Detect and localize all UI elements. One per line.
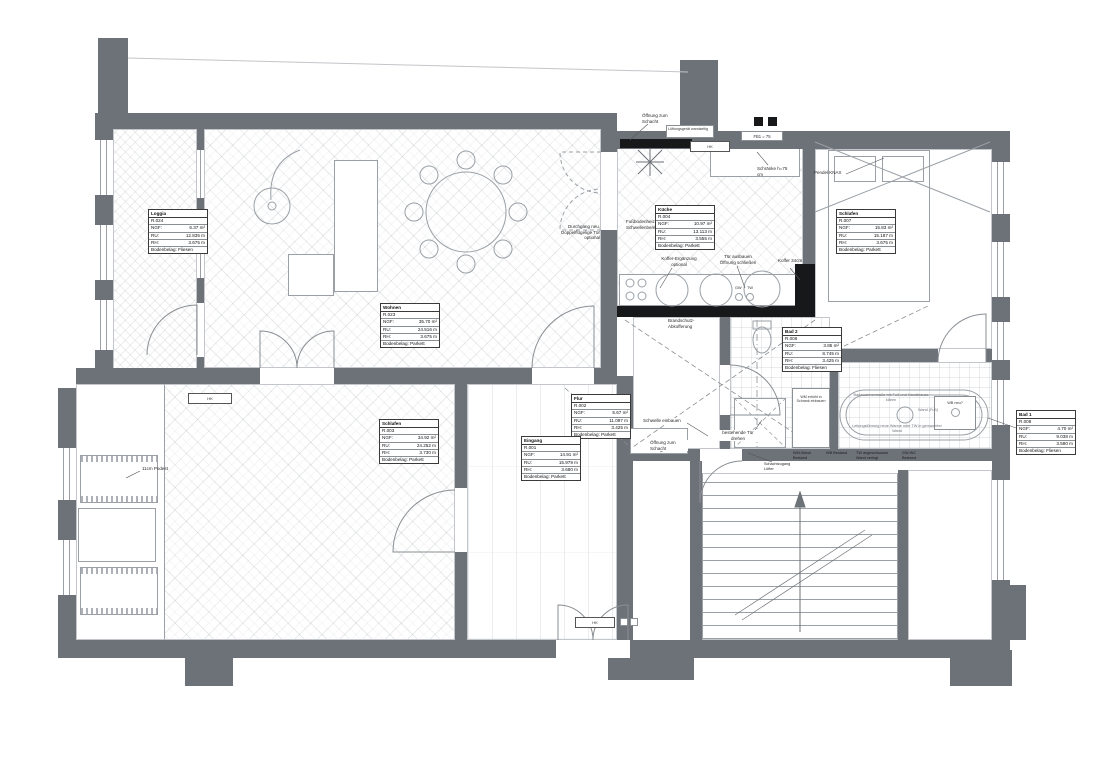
ngf-value: 5.67 m² <box>612 410 628 416</box>
window <box>95 225 113 280</box>
rh-value: 3.730 m <box>419 450 436 456</box>
wall-segment <box>58 388 76 658</box>
rh-label: RH: <box>839 240 847 246</box>
room-label-schlafen-r007: Schlafen R.007 NGF:15.83 m² RU:15.187 m … <box>836 209 896 254</box>
annotation-tuer-drehen: bestehende Tür drehen <box>716 430 760 441</box>
wall-segment <box>601 127 617 152</box>
ngf-value: 35.70 m² <box>419 319 437 325</box>
annotation-schwelle: Schwelle einbauen <box>643 418 687 424</box>
annotation-wand-fuss: Wand (Fuß) <box>918 408 946 413</box>
annotation-badewanne: Badewannenmaße mit Fuß und Handbrause kl… <box>852 393 930 402</box>
room-name: Flur <box>572 395 630 403</box>
room-number: R.004 <box>656 214 714 221</box>
room-name: Bad 2 <box>783 328 841 336</box>
wall-segment <box>95 113 617 129</box>
wall-segment <box>185 658 233 686</box>
window <box>992 380 1010 425</box>
radiator-hk: HK <box>575 617 615 628</box>
wall-segment <box>950 650 1012 686</box>
floor-finish: Bodenbelag: Parkett <box>381 341 439 347</box>
room-number: R.002 <box>572 403 630 410</box>
ngf-value: 14.91 m² <box>560 452 578 458</box>
marker-block <box>768 117 777 126</box>
rh-value: 3.580 m <box>1056 441 1073 447</box>
annotation-pendel-knax: Pendel KNAX <box>814 170 874 176</box>
wall-segment <box>690 461 702 641</box>
annotation-durchgang: Durchgang neu, Doppelflügelige Tür optio… <box>560 224 600 241</box>
annotation-podest: 11cm Podest <box>142 466 186 472</box>
wall-segment <box>608 658 694 680</box>
room-label-bad1: Bad 1 R.008 NGF:4.70 m² RU:9.038 m RH:3.… <box>1016 410 1076 455</box>
rh-label: RH: <box>1019 441 1027 447</box>
small-cabinet <box>620 618 628 626</box>
door-opening <box>532 368 594 384</box>
ru-label: RU: <box>1019 434 1027 440</box>
wall-segment <box>830 362 838 461</box>
ngf-label: NGF: <box>658 221 669 227</box>
rh-label: RH: <box>785 358 793 364</box>
ru-label: RU: <box>839 233 847 239</box>
room-label-bad2: Bad 2 R.006 NGF:3.85 m² RU:8.745 m RH:3.… <box>782 327 842 372</box>
annotation-wm-box: WM erhöht in Schrank einbauen <box>792 388 830 448</box>
radiator-hk: HK <box>690 141 730 152</box>
ngf-label: NGF: <box>574 410 585 416</box>
room-number: R.006 <box>783 336 841 343</box>
ru-value: 24.516 m <box>418 327 437 333</box>
wall-segment <box>1010 585 1026 640</box>
ru-value: 8.745 m <box>822 351 839 357</box>
floor-finish: Bodenbelag: Fliesen <box>1017 448 1075 454</box>
room-name: Schlafen <box>837 210 895 218</box>
door-opening <box>260 368 334 384</box>
floor-finish: Bodenbelag: Parkett <box>656 243 714 249</box>
wall-segment <box>455 384 467 488</box>
annotation-gw: GW <box>735 286 742 291</box>
rh-value: 3.675 m <box>188 240 205 246</box>
ru-label: RU: <box>524 460 532 466</box>
ru-value: 15.187 m <box>874 233 893 239</box>
door-opening <box>601 152 617 230</box>
ngf-value: 4.70 m² <box>1057 426 1073 432</box>
room-label-flur: Flur R.002 NGF:5.67 m² RU:11.097 m RH:3.… <box>571 394 631 439</box>
door-opening <box>197 303 204 357</box>
wall-segment <box>601 230 617 376</box>
annotation-brandschutz: Brandschutz-Abkofferung <box>668 318 714 329</box>
room-name: Wohnen <box>381 304 439 312</box>
chimney <box>680 60 718 131</box>
annotation-schraenke: Schränke h=75 cm <box>757 166 791 177</box>
pillow <box>882 156 924 182</box>
room-name: Bad 1 <box>1017 411 1075 419</box>
ru-label: RU: <box>382 443 390 449</box>
room-label-schlafen-r003: Schlafen R.003 NGF:34.92 m² RU:24.252 m … <box>379 419 439 464</box>
ru-label: RU: <box>574 418 582 424</box>
rh-label: RH: <box>658 236 666 242</box>
room-number: R.007 <box>837 218 895 225</box>
ngf-label: NGF: <box>839 225 850 231</box>
stair-landing <box>908 470 992 640</box>
wall-segment <box>898 470 908 640</box>
wb-neu-label: WB neu? <box>947 401 963 405</box>
rh-label: RH: <box>382 450 390 456</box>
room-number: R.024 <box>149 218 207 225</box>
rh-value: 3.425 m <box>611 425 628 431</box>
rh-value: 3.425 m <box>822 358 839 364</box>
kitchen-counter <box>619 274 803 306</box>
floor-finish: Bodenbelag: Parkett <box>380 457 438 463</box>
annotation-wm-wand-bestand: WM-Wand Bestand <box>793 451 819 460</box>
room-number: R.023 <box>381 312 439 319</box>
room-number: R.001 <box>522 445 580 452</box>
fb1-label: FB1 = 75 <box>753 134 770 139</box>
floor-finish: Bodenbelag: Fliesen <box>149 247 207 253</box>
ngf-label: NGF: <box>383 319 394 325</box>
annotation-leitungsfuehrung: Leitungsführung neue Wanne oder TW in ge… <box>852 424 942 433</box>
ngf-value: 3.85 m² <box>823 343 839 349</box>
room-name: Loggia <box>149 210 207 218</box>
floor-finish: Bodenbelag: Parkett <box>837 247 895 253</box>
ru-label: RU: <box>785 351 793 357</box>
room-name: Küche <box>656 206 714 214</box>
ru-value: 9.038 m <box>1056 434 1073 440</box>
annotation-oeffnung-schacht-top: Öffnung zum Schacht <box>642 113 678 124</box>
rh-value: 3.675 m <box>420 334 437 340</box>
annotation-fb1-box: FB1 = 75 <box>741 131 783 141</box>
ru-label: RU: <box>383 327 391 333</box>
marker-block <box>754 117 763 126</box>
rh-label: RH: <box>524 467 532 473</box>
door-opening <box>720 365 730 415</box>
annotation-tw: TW <box>747 286 753 291</box>
annotation-oeffnung-schacht-flur: Öffnung zum Schacht <box>650 440 688 451</box>
wardrobe <box>80 455 158 503</box>
room-label-eingang: Eingang R.001 NGF:14.91 m² RU:15.979 m R… <box>521 436 581 481</box>
window <box>992 162 1010 214</box>
ngf-value: 34.92 m² <box>418 435 436 441</box>
wardrobe <box>80 567 158 615</box>
wall-segment <box>594 368 617 384</box>
ru-value: 13.113 m <box>693 229 712 235</box>
window <box>992 480 1010 580</box>
floor-plan: HK HK HK <box>0 0 1117 768</box>
window <box>197 150 204 198</box>
annotation-tw-wand: TW angeschlossen Wand verlegt <box>856 451 896 460</box>
window <box>95 140 113 195</box>
koffer-block <box>795 264 815 306</box>
ngf-value: 6.37 m² <box>189 225 205 231</box>
stairwell <box>702 473 898 640</box>
rh-value: 3.675 m <box>876 240 893 246</box>
small-cabinet <box>630 618 638 626</box>
window <box>95 300 113 350</box>
room-number: R.003 <box>380 428 438 435</box>
ru-label: RU: <box>658 229 666 235</box>
room-label-wohnen: Wohnen R.023 NGF:35.70 m² RU:24.516 m RH… <box>380 303 440 348</box>
door-opening <box>700 449 742 461</box>
window <box>992 242 1010 297</box>
floor-finish: Bodenbelag: Parkett <box>522 474 580 480</box>
radiator-hk: HK <box>188 393 232 404</box>
wall-segment <box>455 552 467 644</box>
ngf-label: NGF: <box>151 225 162 231</box>
rh-label: RH: <box>574 425 582 431</box>
room-number: R.008 <box>1017 419 1075 426</box>
ru-value: 24.252 m <box>417 443 436 449</box>
rh-label: RH: <box>151 240 159 246</box>
pillow <box>834 156 876 182</box>
annotation-koffer-34: Koffer 34cm <box>778 258 812 264</box>
hk-label: HK <box>207 396 213 401</box>
room-loggia <box>113 129 197 380</box>
entry-door-opening <box>556 640 630 658</box>
ngf-label: NGF: <box>1019 426 1030 432</box>
wall-segment <box>58 640 1010 658</box>
rh-value: 3.680 m <box>561 467 578 473</box>
wall-segment <box>334 368 532 384</box>
wall-segment <box>76 368 260 384</box>
chimney <box>98 38 128 115</box>
hk-label: HK <box>707 144 713 149</box>
door-opening <box>938 349 986 362</box>
room-label-kueche: Küche R.004 NGF:10.97 m² RU:13.113 m RH:… <box>655 205 715 250</box>
annotation-gw-wc-bestand: GW-WC Bestand <box>902 451 930 460</box>
wall-segment <box>720 317 730 365</box>
sofa <box>334 160 378 292</box>
ngf-label: NGF: <box>785 343 796 349</box>
annotation-schachtzugang: Schachtzugang Lüfter <box>764 462 798 471</box>
floor-finish: Bodenbelag: Fliesen <box>783 365 841 371</box>
rh-value: 3.555 m <box>695 236 712 242</box>
hk-label: HK <box>592 620 598 625</box>
lueftung-label: Lüftungsgerät wandseitig <box>668 127 708 131</box>
ngf-label: NGF: <box>382 435 393 441</box>
annotation-tuer-ausbauen: Tür ausbauen Öffnung schließen <box>716 254 760 265</box>
annotation-koffer-ergaenzung: Koffer-Ergänzung optional <box>656 256 702 267</box>
ru-label: RU: <box>151 233 159 239</box>
room-name: Eingang <box>522 437 580 445</box>
annotation-lueftung-box: Lüftungsgerät wandseitig <box>666 125 714 138</box>
annotation-wb-bestand: WB Bestand <box>826 451 850 456</box>
ngf-value: 10.97 m² <box>694 221 712 227</box>
door-opening <box>455 488 467 552</box>
site-line <box>128 58 688 72</box>
room-label-loggia: Loggia R.024 NGF:6.37 m² RU:12.835 m RH:… <box>148 209 208 254</box>
wm-label: WM erhöht in Schrank einbauen <box>797 395 826 403</box>
ru-value: 12.835 m <box>186 233 205 239</box>
sofa-chaise <box>288 254 334 296</box>
ru-value: 11.097 m <box>609 418 628 424</box>
room-name: Schlafen <box>380 420 438 428</box>
ru-value: 15.979 m <box>559 460 578 466</box>
kitchen-wall-bar <box>617 306 815 317</box>
rh-label: RH: <box>383 334 391 340</box>
window <box>58 540 76 595</box>
shaft-notch <box>620 139 692 148</box>
wardrobe <box>78 508 156 562</box>
window <box>992 322 1010 360</box>
ngf-value: 15.83 m² <box>875 225 893 231</box>
ngf-label: NGF: <box>524 452 535 458</box>
window <box>58 448 76 500</box>
